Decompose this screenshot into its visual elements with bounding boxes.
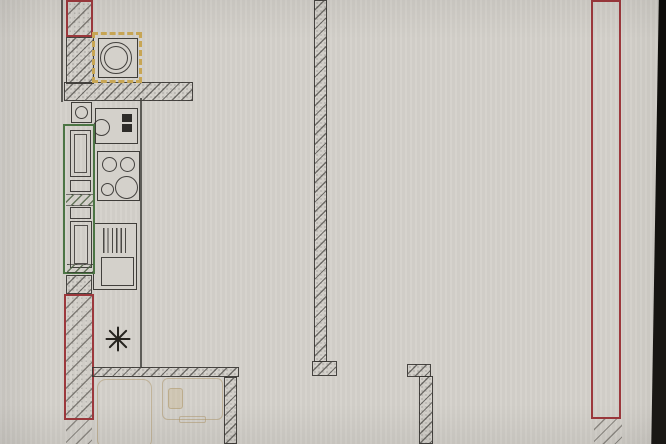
kitchen-zone-line	[140, 98, 142, 367]
pencil-fixture-tab	[179, 416, 206, 423]
floor-plan-canvas	[0, 0, 666, 444]
wall-middle-foot	[312, 361, 337, 376]
wall-left-upper	[66, 37, 94, 84]
switch-block-2	[122, 124, 132, 132]
wall-middle-vertical	[314, 0, 327, 362]
wall-bottom-horizontal	[92, 367, 239, 377]
pencil-fixture-inner	[168, 388, 183, 409]
wall-left-bottom	[66, 420, 92, 444]
burner-bottom-right	[115, 176, 138, 199]
cabinet-hatch-band	[66, 194, 93, 206]
boiler-drum-inner	[104, 46, 128, 70]
wall-right-red	[591, 0, 621, 419]
wall-top-horizontal	[64, 82, 193, 101]
drainboard-lines	[103, 228, 126, 253]
wall-left-red	[64, 294, 94, 420]
wall-edge-line-top-left	[61, 0, 63, 102]
wall-inner-vertical-bottom	[224, 377, 237, 444]
burner-top-right	[120, 157, 135, 172]
burner-bottom-left	[101, 183, 114, 196]
cabinet-hatch-bottom	[67, 264, 93, 273]
wall-left-mid	[66, 275, 92, 294]
burner-top-left	[102, 157, 117, 172]
vent-circle	[75, 106, 88, 119]
cabinet-4-inner	[74, 225, 88, 264]
wall-top-left-red	[66, 0, 93, 37]
wall-right-bottom	[594, 419, 622, 444]
cabinet-3	[70, 207, 91, 219]
cabinet-2	[70, 180, 91, 192]
sink-basin	[101, 257, 134, 286]
freezer-symbol	[105, 326, 130, 351]
photo-edge-right	[650, 0, 666, 444]
cabinet-1-inner	[74, 134, 87, 173]
pencil-bathtub	[97, 379, 152, 444]
switch-block-1	[122, 114, 132, 122]
sink-bowl	[93, 119, 110, 136]
wall-lower-right-vertical	[419, 376, 433, 444]
floor-plan-photo	[0, 0, 666, 444]
